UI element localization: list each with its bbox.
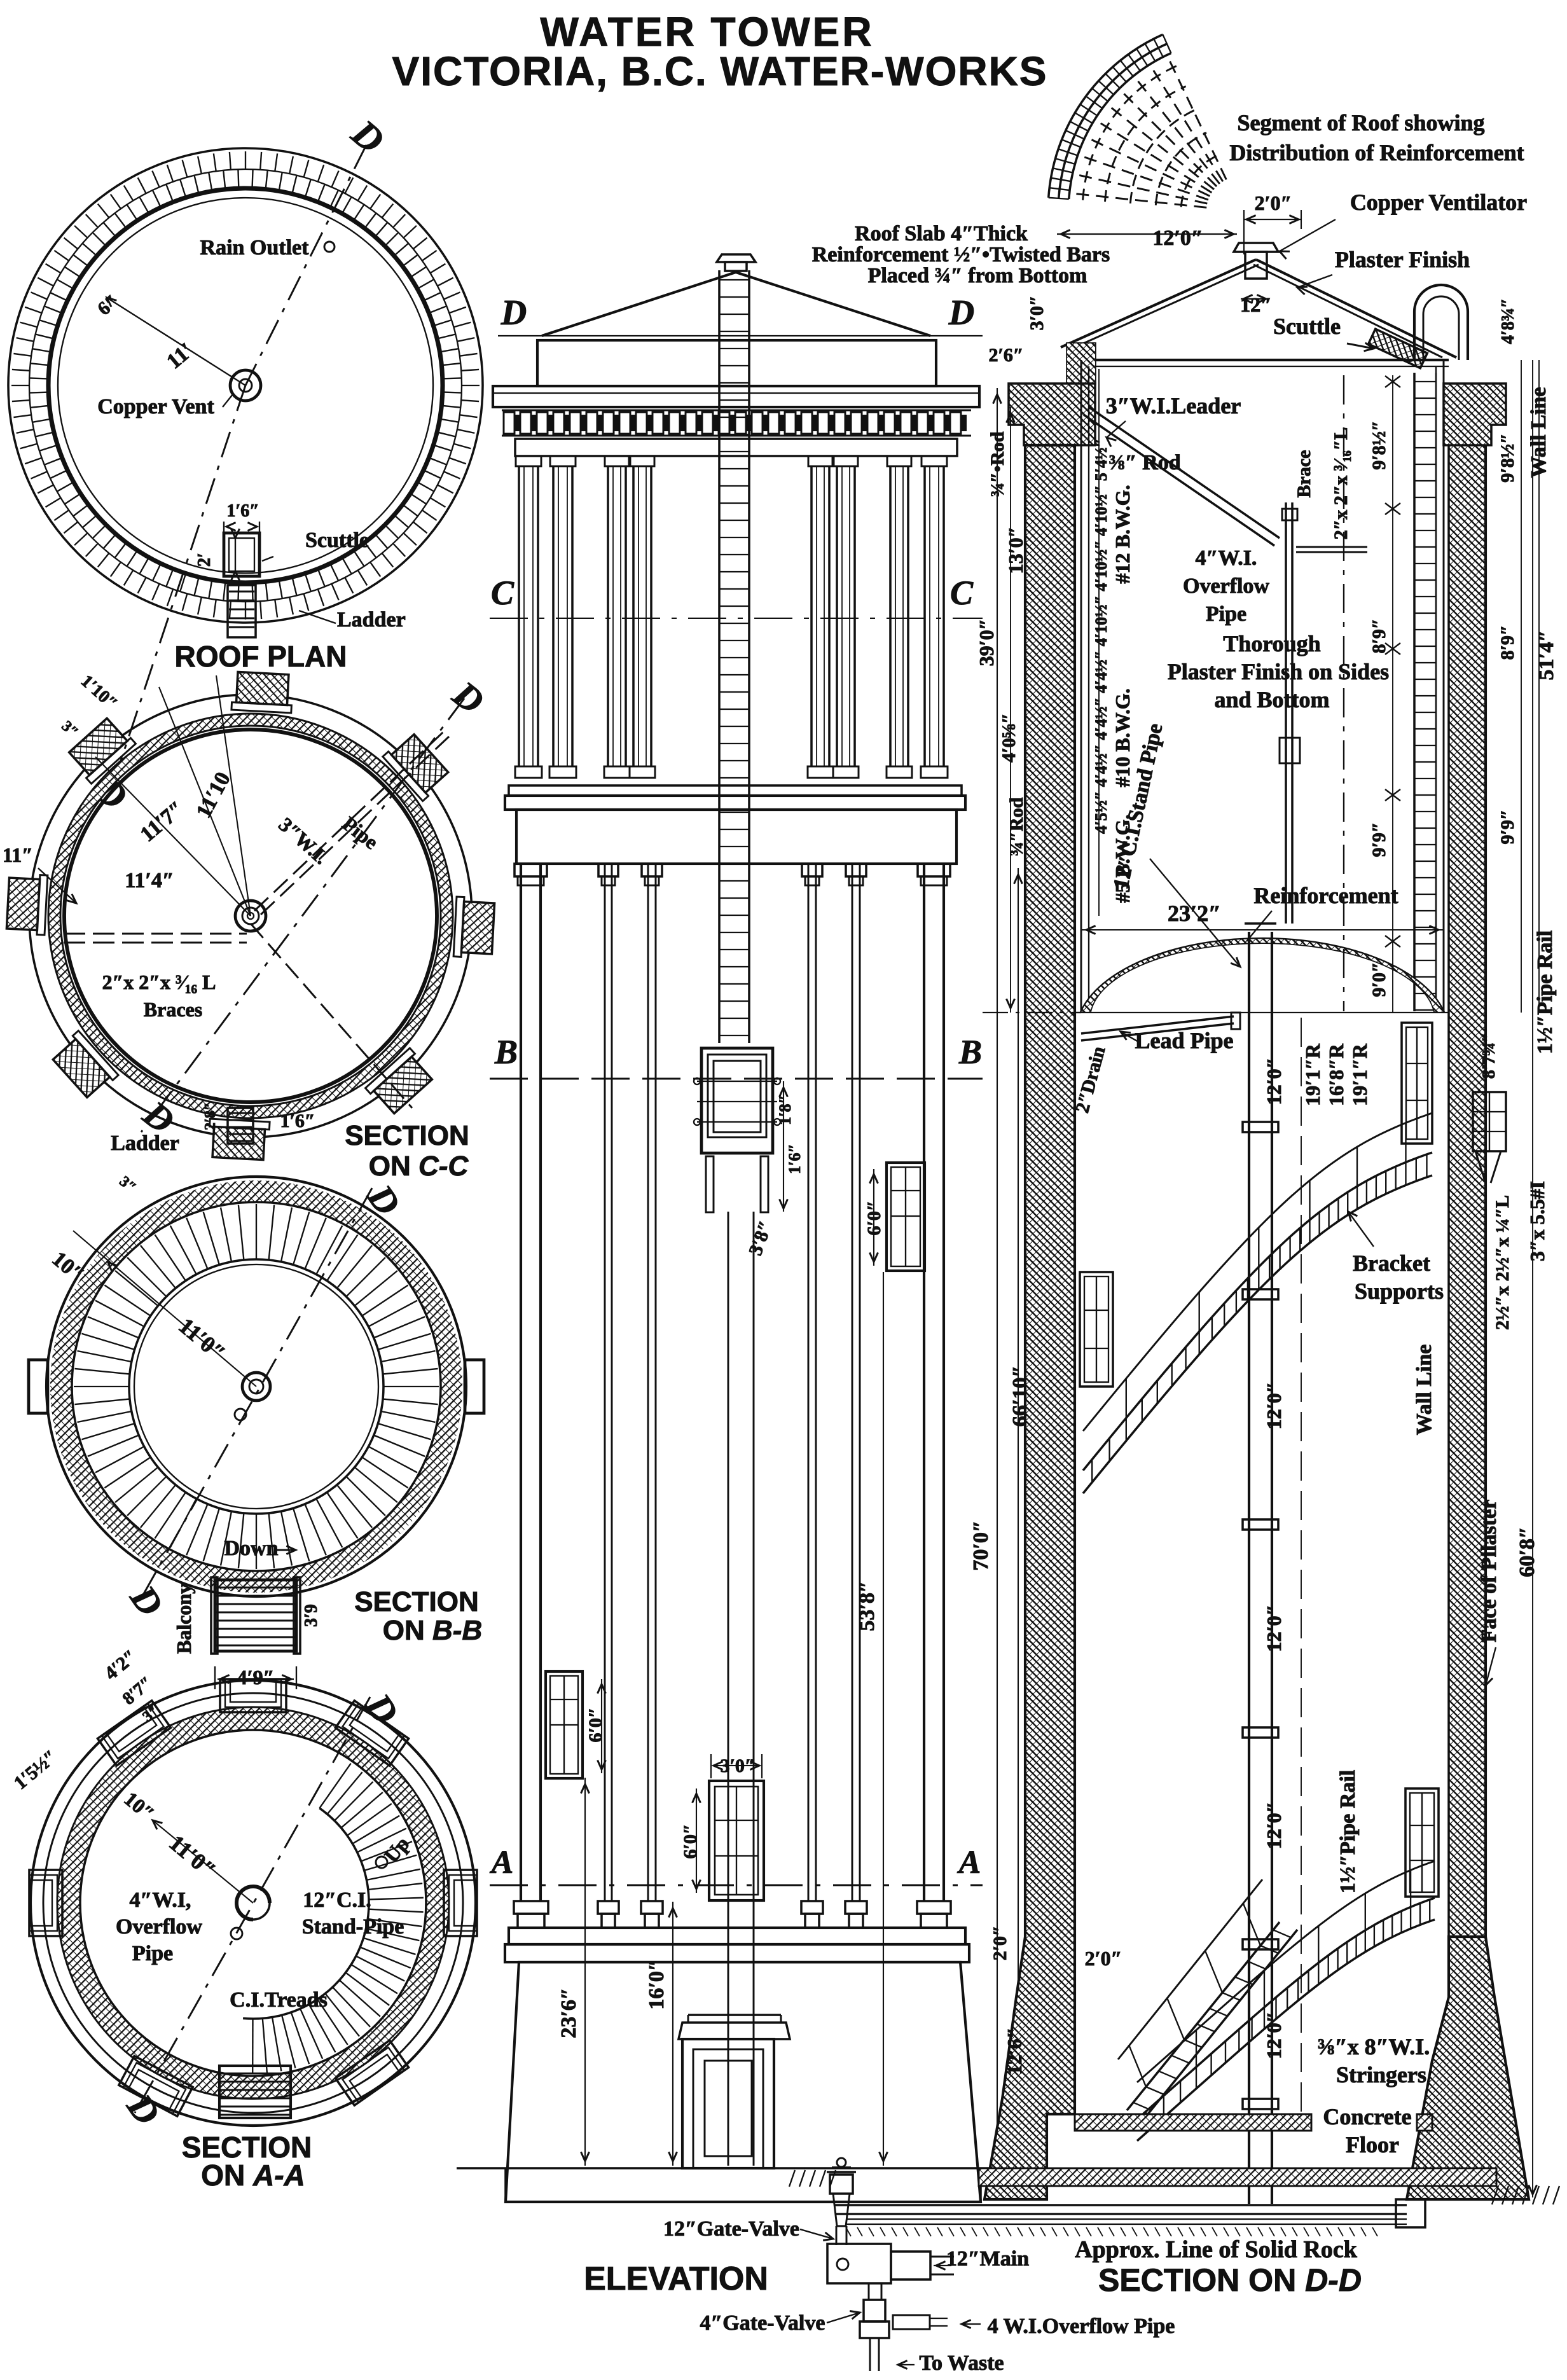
svg-text:2′6″: 2′6″ (988, 345, 1023, 366)
svg-text:12′0″: 12′0″ (1152, 226, 1203, 250)
svg-text:Pipe: Pipe (1206, 602, 1246, 626)
svg-text:Balcony: Balcony (172, 1584, 195, 1654)
svg-text:Copper Vent: Copper Vent (97, 395, 214, 419)
svg-text:9′9″: 9′9″ (1497, 809, 1518, 844)
svg-text:4′8¾″: 4′8¾″ (1498, 298, 1518, 344)
svg-text:12′0″: 12′0″ (1262, 1605, 1285, 1652)
svg-text:ROOF PLAN: ROOF PLAN (175, 640, 347, 673)
svg-text:12′0″: 12′0″ (1262, 2012, 1285, 2059)
svg-text:6′0″: 6′0″ (680, 1823, 701, 1858)
svg-text:1′6″: 1′6″ (226, 501, 259, 521)
svg-text:4 W.I.Overflow Pipe: 4 W.I.Overflow Pipe (988, 2314, 1175, 2338)
svg-text:Supports: Supports (1355, 1278, 1444, 1304)
svg-text:ELEVATION: ELEVATION (584, 2260, 768, 2297)
svg-text:Pipe: Pipe (132, 1942, 173, 1965)
svg-text:2½″x 2½″x ¼″L: 2½″x 2½″x ¼″L (1492, 1195, 1513, 1330)
svg-text:8′7¾″: 8′7¾″ (1479, 1033, 1499, 1079)
svg-text:#5 B.W.G.: #5 B.W.G. (1111, 814, 1134, 903)
svg-text:2″x 2″x ³⁄₁₆″L: 2″x 2″x ³⁄₁₆″L (1330, 427, 1351, 540)
svg-text:B: B (958, 1033, 982, 1071)
svg-text:70′0″: 70′0″ (969, 1520, 993, 1570)
svg-text:39′0″: 39′0″ (975, 619, 998, 667)
svg-text:2′8″: 2′8″ (202, 1102, 219, 1130)
svg-text:3′9: 3′9 (301, 1604, 321, 1627)
svg-text:23′6″: 23′6″ (557, 1988, 581, 2038)
svg-text:Floor: Floor (1346, 2132, 1399, 2157)
svg-text:C: C (950, 574, 974, 612)
svg-text:8′9″: 8′9″ (1369, 618, 1390, 653)
svg-text:Lead Pipe: Lead Pipe (1135, 1028, 1233, 1053)
svg-text:13′0″: 13′0″ (1004, 527, 1027, 574)
svg-text:60′8″: 60′8″ (1515, 1526, 1539, 1577)
svg-text:VICTORIA, B.C. WATER-WORKS: VICTORIA, B.C. WATER-WORKS (392, 48, 1048, 94)
svg-text:51′4″: 51′4″ (1535, 630, 1558, 680)
svg-text:4″W.I,: 4″W.I, (130, 1888, 191, 1912)
svg-text:Plaster Finish on Sides: Plaster Finish on Sides (1168, 659, 1389, 684)
svg-text:Placed ¾″ from Bottom: Placed ¾″ from Bottom (868, 264, 1087, 287)
svg-text:SECTION ON D-D: SECTION ON D-D (1098, 2262, 1362, 2298)
svg-text:1½″Pipe Rail: 1½″Pipe Rail (1336, 1770, 1360, 1893)
svg-text:Plaster Finish: Plaster Finish (1335, 247, 1470, 272)
svg-text:To Waste: To Waste (919, 2351, 1004, 2375)
svg-text:2′0″: 2′0″ (1255, 191, 1292, 214)
svg-text:53′8″: 53′8″ (855, 1581, 879, 1631)
svg-text:9′8½″: 9′8½″ (1497, 433, 1518, 483)
svg-text:9′0″: 9′0″ (1369, 962, 1390, 997)
svg-text:Braces: Braces (144, 998, 202, 1021)
svg-text:4′9″: 4′9″ (237, 1666, 275, 1689)
svg-text:Overflow: Overflow (1183, 574, 1269, 598)
svg-text:Scuttle: Scuttle (305, 529, 369, 552)
svg-text:Down: Down (224, 1537, 278, 1560)
svg-text:3″W.I.Leader: 3″W.I.Leader (1106, 393, 1241, 419)
svg-text:ON B-B: ON B-B (383, 1615, 482, 1646)
svg-text:#10 B.W.G.: #10 B.W.G. (1111, 688, 1134, 787)
svg-text:4″W.I.: 4″W.I. (1196, 546, 1257, 570)
svg-text:Concrete: Concrete (1323, 2104, 1411, 2129)
svg-text:Stringers: Stringers (1336, 2062, 1426, 2087)
svg-text:12″: 12″ (1240, 293, 1272, 316)
svg-text:Distribution of Reinforcement: Distribution of Reinforcement (1229, 140, 1524, 165)
svg-text:6′0″: 6′0″ (585, 1707, 606, 1742)
svg-text:⅜″ Rod: ⅜″ Rod (1108, 451, 1180, 474)
svg-text:19′1″R: 19′1″R (1301, 1043, 1324, 1106)
svg-text:4′5½″ 4′4½″ 4′4½″ 4′4½″ 4′10½″: 4′5½″ 4′4½″ 4′4½″ 4′4½″ 4′10½″ 4′10½″ 4′… (1092, 438, 1110, 834)
svg-text:Overflow: Overflow (116, 1915, 202, 1939)
svg-text:A: A (957, 1844, 981, 1881)
svg-text:9′8½″: 9′8½″ (1369, 420, 1390, 470)
svg-text:11″: 11″ (3, 843, 33, 866)
svg-text:Stand-Pipe: Stand-Pipe (302, 1915, 404, 1939)
svg-text:#12 B.W.G.: #12 B.W.G. (1111, 485, 1134, 583)
svg-text:12′0″: 12′0″ (1262, 1802, 1285, 1850)
svg-text:2′0″: 2′0″ (990, 1925, 1011, 1960)
svg-text:11′4″: 11′4″ (125, 869, 174, 892)
svg-text:Thorough: Thorough (1223, 631, 1320, 656)
svg-text:SECTION: SECTION (354, 1586, 479, 1617)
svg-text:Reinforcement ½″•Twisted Bars: Reinforcement ½″•Twisted Bars (812, 243, 1110, 266)
svg-text:2′: 2′ (195, 553, 214, 567)
svg-text:Face of Pilaster: Face of Pilaster (1477, 1500, 1501, 1643)
svg-text:ON A-A: ON A-A (201, 2159, 305, 2192)
svg-text:Brace: Brace (1294, 450, 1315, 498)
svg-text:Reinforcement: Reinforcement (1253, 883, 1398, 908)
svg-text:Scuttle: Scuttle (1273, 314, 1341, 339)
svg-text:¾″Rod: ¾″Rod (1006, 797, 1027, 856)
svg-text:Wall Line: Wall Line (1412, 1345, 1436, 1436)
svg-text:1½″Pipe Rail: 1½″Pipe Rail (1533, 931, 1557, 1054)
svg-text:⅜″x 8″W.I.: ⅜″x 8″W.I. (1318, 2034, 1430, 2059)
svg-text:SECTION: SECTION (345, 1120, 469, 1151)
svg-text:4′0⅝″: 4′0⅝″ (998, 713, 1019, 763)
svg-text:12′0″: 12′0″ (1262, 1382, 1285, 1430)
svg-text:1′6″: 1′6″ (785, 1144, 804, 1174)
svg-text:16′8″R: 16′8″R (1325, 1043, 1348, 1106)
svg-text:D: D (500, 293, 527, 333)
svg-text:Copper Ventilator: Copper Ventilator (1350, 190, 1527, 215)
svg-text:3″x 5.5#I: 3″x 5.5#I (1526, 1181, 1549, 1261)
svg-text:12′0″: 12′0″ (1262, 1058, 1285, 1105)
svg-text:12′6″: 12′6″ (1003, 2028, 1026, 2075)
svg-text:and Bottom: and Bottom (1214, 687, 1329, 712)
svg-text:B: B (494, 1033, 518, 1071)
svg-text:ON C-C: ON C-C (369, 1151, 469, 1182)
svg-text:Rain Outlet: Rain Outlet (200, 236, 310, 259)
svg-text:3′0″: 3′0″ (1026, 295, 1047, 330)
svg-text:Ladder: Ladder (337, 608, 406, 632)
svg-text:12″C.I.: 12″C.I. (303, 1888, 371, 1912)
svg-text:16′0″: 16′0″ (645, 1959, 668, 2009)
svg-text:19′1″R: 19′1″R (1348, 1043, 1371, 1106)
svg-text:1′6″: 1′6″ (280, 1110, 315, 1131)
svg-text:Roof Slab 4″Thick: Roof Slab 4″Thick (855, 222, 1028, 246)
svg-text:C: C (491, 574, 514, 612)
svg-text:A: A (490, 1844, 514, 1881)
svg-text:2″x 2″x ³⁄₁₆ L: 2″x 2″x ³⁄₁₆ L (102, 971, 216, 993)
svg-text:1′8″: 1′8″ (776, 1095, 794, 1125)
svg-text:D: D (948, 293, 974, 333)
svg-text:Bracket: Bracket (1353, 1250, 1430, 1276)
svg-text:8′9″: 8′9″ (1497, 625, 1518, 660)
svg-text:C.I.Treads: C.I.Treads (230, 1988, 328, 2012)
svg-text:Ladder: Ladder (111, 1131, 179, 1155)
svg-text:4″Gate-Valve: 4″Gate-Valve (700, 2311, 825, 2335)
svg-text:¾″•Rod: ¾″•Rod (987, 431, 1008, 497)
svg-text:Segment of Roof showing: Segment of Roof showing (1237, 110, 1484, 135)
svg-text:23′2″: 23′2″ (1168, 901, 1221, 926)
svg-text:Approx. Line of Solid Rock: Approx. Line of Solid Rock (1075, 2236, 1358, 2263)
svg-text:2′0″: 2′0″ (1085, 1947, 1122, 1970)
svg-text:12″Main: 12″Main (946, 2247, 1029, 2271)
svg-text:9′9″: 9′9″ (1369, 822, 1390, 857)
svg-text:12″Gate-Valve: 12″Gate-Valve (663, 2217, 799, 2241)
